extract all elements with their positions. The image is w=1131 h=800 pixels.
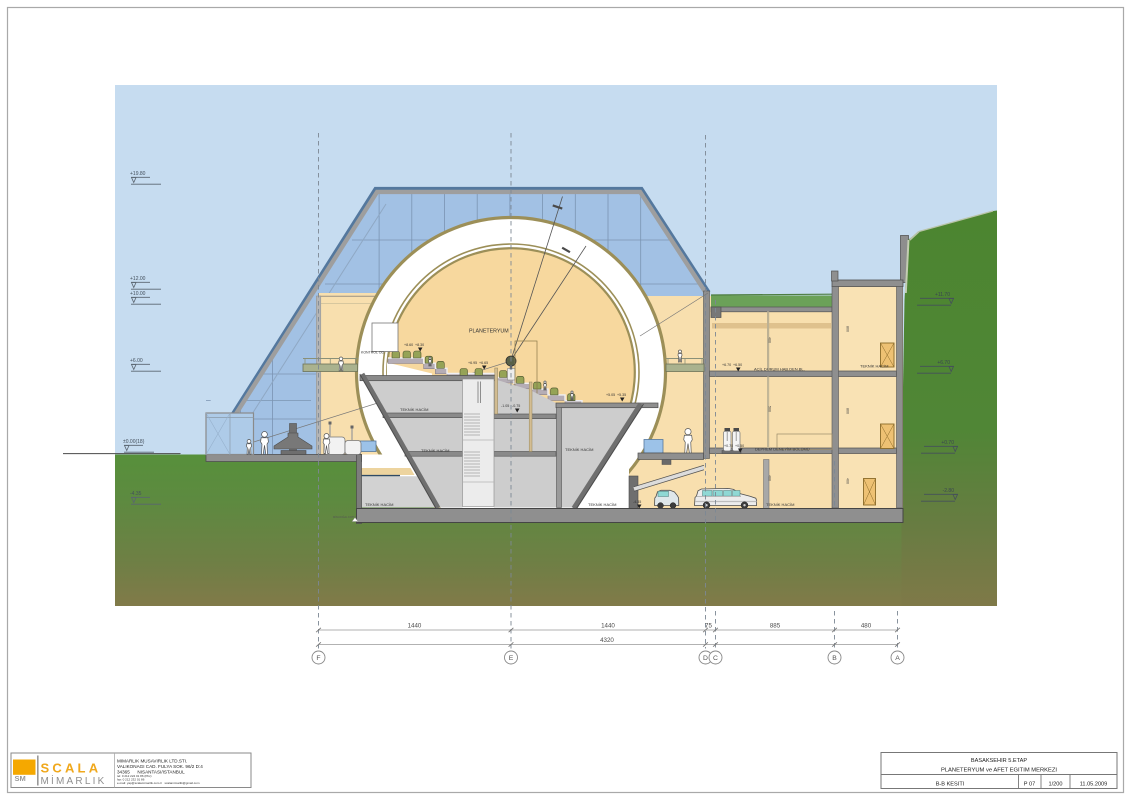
svg-text:885: 885 <box>770 622 781 629</box>
svg-text:800: 800 <box>845 326 849 332</box>
svg-text:-0.75: -0.75 <box>512 404 520 408</box>
svg-text:+6.70: +6.70 <box>722 363 731 367</box>
svg-text:SCALA: SCALA <box>41 761 102 776</box>
svg-text:-4.35: -4.35 <box>130 491 142 497</box>
svg-text:+0.50: +0.50 <box>735 444 744 448</box>
svg-text:+19.80: +19.80 <box>130 171 146 177</box>
svg-text:+5.05: +5.05 <box>606 393 615 397</box>
svg-text:400: 400 <box>845 478 849 484</box>
svg-text:+10.00: +10.00 <box>130 291 146 297</box>
svg-text:+6.65: +6.65 <box>479 361 488 365</box>
svg-text:B-B KESITI: B-B KESITI <box>936 781 965 787</box>
svg-text:+12.00: +12.00 <box>130 276 146 282</box>
svg-text:75: 75 <box>705 622 712 629</box>
svg-text:+11.70: +11.70 <box>935 292 950 298</box>
svg-text:1440: 1440 <box>408 622 422 629</box>
svg-text:BASAKSEHIR 5.ETAP: BASAKSEHIR 5.ETAP <box>971 758 1027 764</box>
svg-text:A: A <box>895 655 900 662</box>
svg-text:-1.05: -1.05 <box>501 404 509 408</box>
svg-text:-4.35: -4.35 <box>633 500 641 504</box>
svg-text:F: F <box>316 655 320 662</box>
svg-text:TEKNİK HACİM: TEKNİK HACİM <box>860 364 888 369</box>
svg-text:+5.35: +5.35 <box>617 393 626 397</box>
svg-text:PLANETERYUM: PLANETERYUM <box>469 329 509 335</box>
svg-text:TEKNİK HACİM: TEKNİK HACİM <box>365 502 393 507</box>
svg-text:E: E <box>509 655 514 662</box>
svg-text:+8.60: +8.60 <box>404 343 413 347</box>
svg-text:±0.00(18): ±0.00(18) <box>123 439 145 445</box>
svg-text:+6.00: +6.00 <box>130 358 143 364</box>
svg-text:+0.70: +0.70 <box>724 444 733 448</box>
svg-text:+6.70: +6.70 <box>937 360 950 366</box>
svg-text:800: 800 <box>845 408 849 414</box>
svg-text:+0.70: +0.70 <box>941 440 954 446</box>
svg-text:ACİL DURUM HAB.DEN.BL.: ACİL DURUM HAB.DEN.BL. <box>754 367 805 372</box>
svg-text:400: 400 <box>767 475 771 481</box>
svg-text:4320: 4320 <box>600 637 614 644</box>
svg-text:B: B <box>832 655 837 662</box>
svg-text:DEPREM DENEYİM BÖLÜMÜ: DEPREM DENEYİM BÖLÜMÜ <box>755 447 810 452</box>
svg-text:500: 500 <box>767 406 771 412</box>
svg-text:D: D <box>703 655 708 662</box>
svg-text:480: 480 <box>861 622 872 629</box>
svg-text:+8.30: +8.30 <box>415 343 424 347</box>
svg-text:1/200: 1/200 <box>1049 781 1063 787</box>
svg-text:e-mail: yap@scalamimarlik.com.: e-mail: yap@scalamimarlik.com.tr scalami… <box>117 781 200 785</box>
svg-text:TEKNİK HACİM: TEKNİK HACİM <box>766 502 794 507</box>
svg-text:TEKNİK HACİM: TEKNİK HACİM <box>400 407 428 412</box>
svg-text:11.05.2009: 11.05.2009 <box>1080 781 1108 787</box>
svg-text:MIMARLIK MUSAVIRLIK LTD.STI.: MIMARLIK MUSAVIRLIK LTD.STI. <box>117 759 187 764</box>
svg-text:400: 400 <box>767 337 771 343</box>
svg-text:VALIKONAGI CAD. FULYA SOK. 96/: VALIKONAGI CAD. FULYA SOK. 96/2 D:4 <box>117 764 203 769</box>
svg-text:P 07: P 07 <box>1024 781 1035 787</box>
svg-text:KONTROL OD.: KONTROL OD. <box>361 351 385 355</box>
svg-text:TEKNİK HACİM: TEKNİK HACİM <box>588 502 616 507</box>
svg-text:TEKNİK HACİM: TEKNİK HACİM <box>421 448 449 453</box>
svg-text:+6.95: +6.95 <box>468 361 477 365</box>
svg-text:MİMARLIK: MİMARLIK <box>41 774 107 787</box>
svg-text:1440: 1440 <box>601 622 615 629</box>
svg-text:TEKNİK HACİM: TEKNİK HACİM <box>565 447 593 452</box>
svg-text:-2.80: -2.80 <box>943 488 955 494</box>
svg-text:SM: SM <box>15 774 26 783</box>
svg-text:+6.50: +6.50 <box>733 363 742 367</box>
svg-text:C: C <box>713 655 718 662</box>
svg-text:PLANETERYUM ve AFET EGITIM MER: PLANETERYUM ve AFET EGITIM MERKEZI <box>941 767 1057 773</box>
